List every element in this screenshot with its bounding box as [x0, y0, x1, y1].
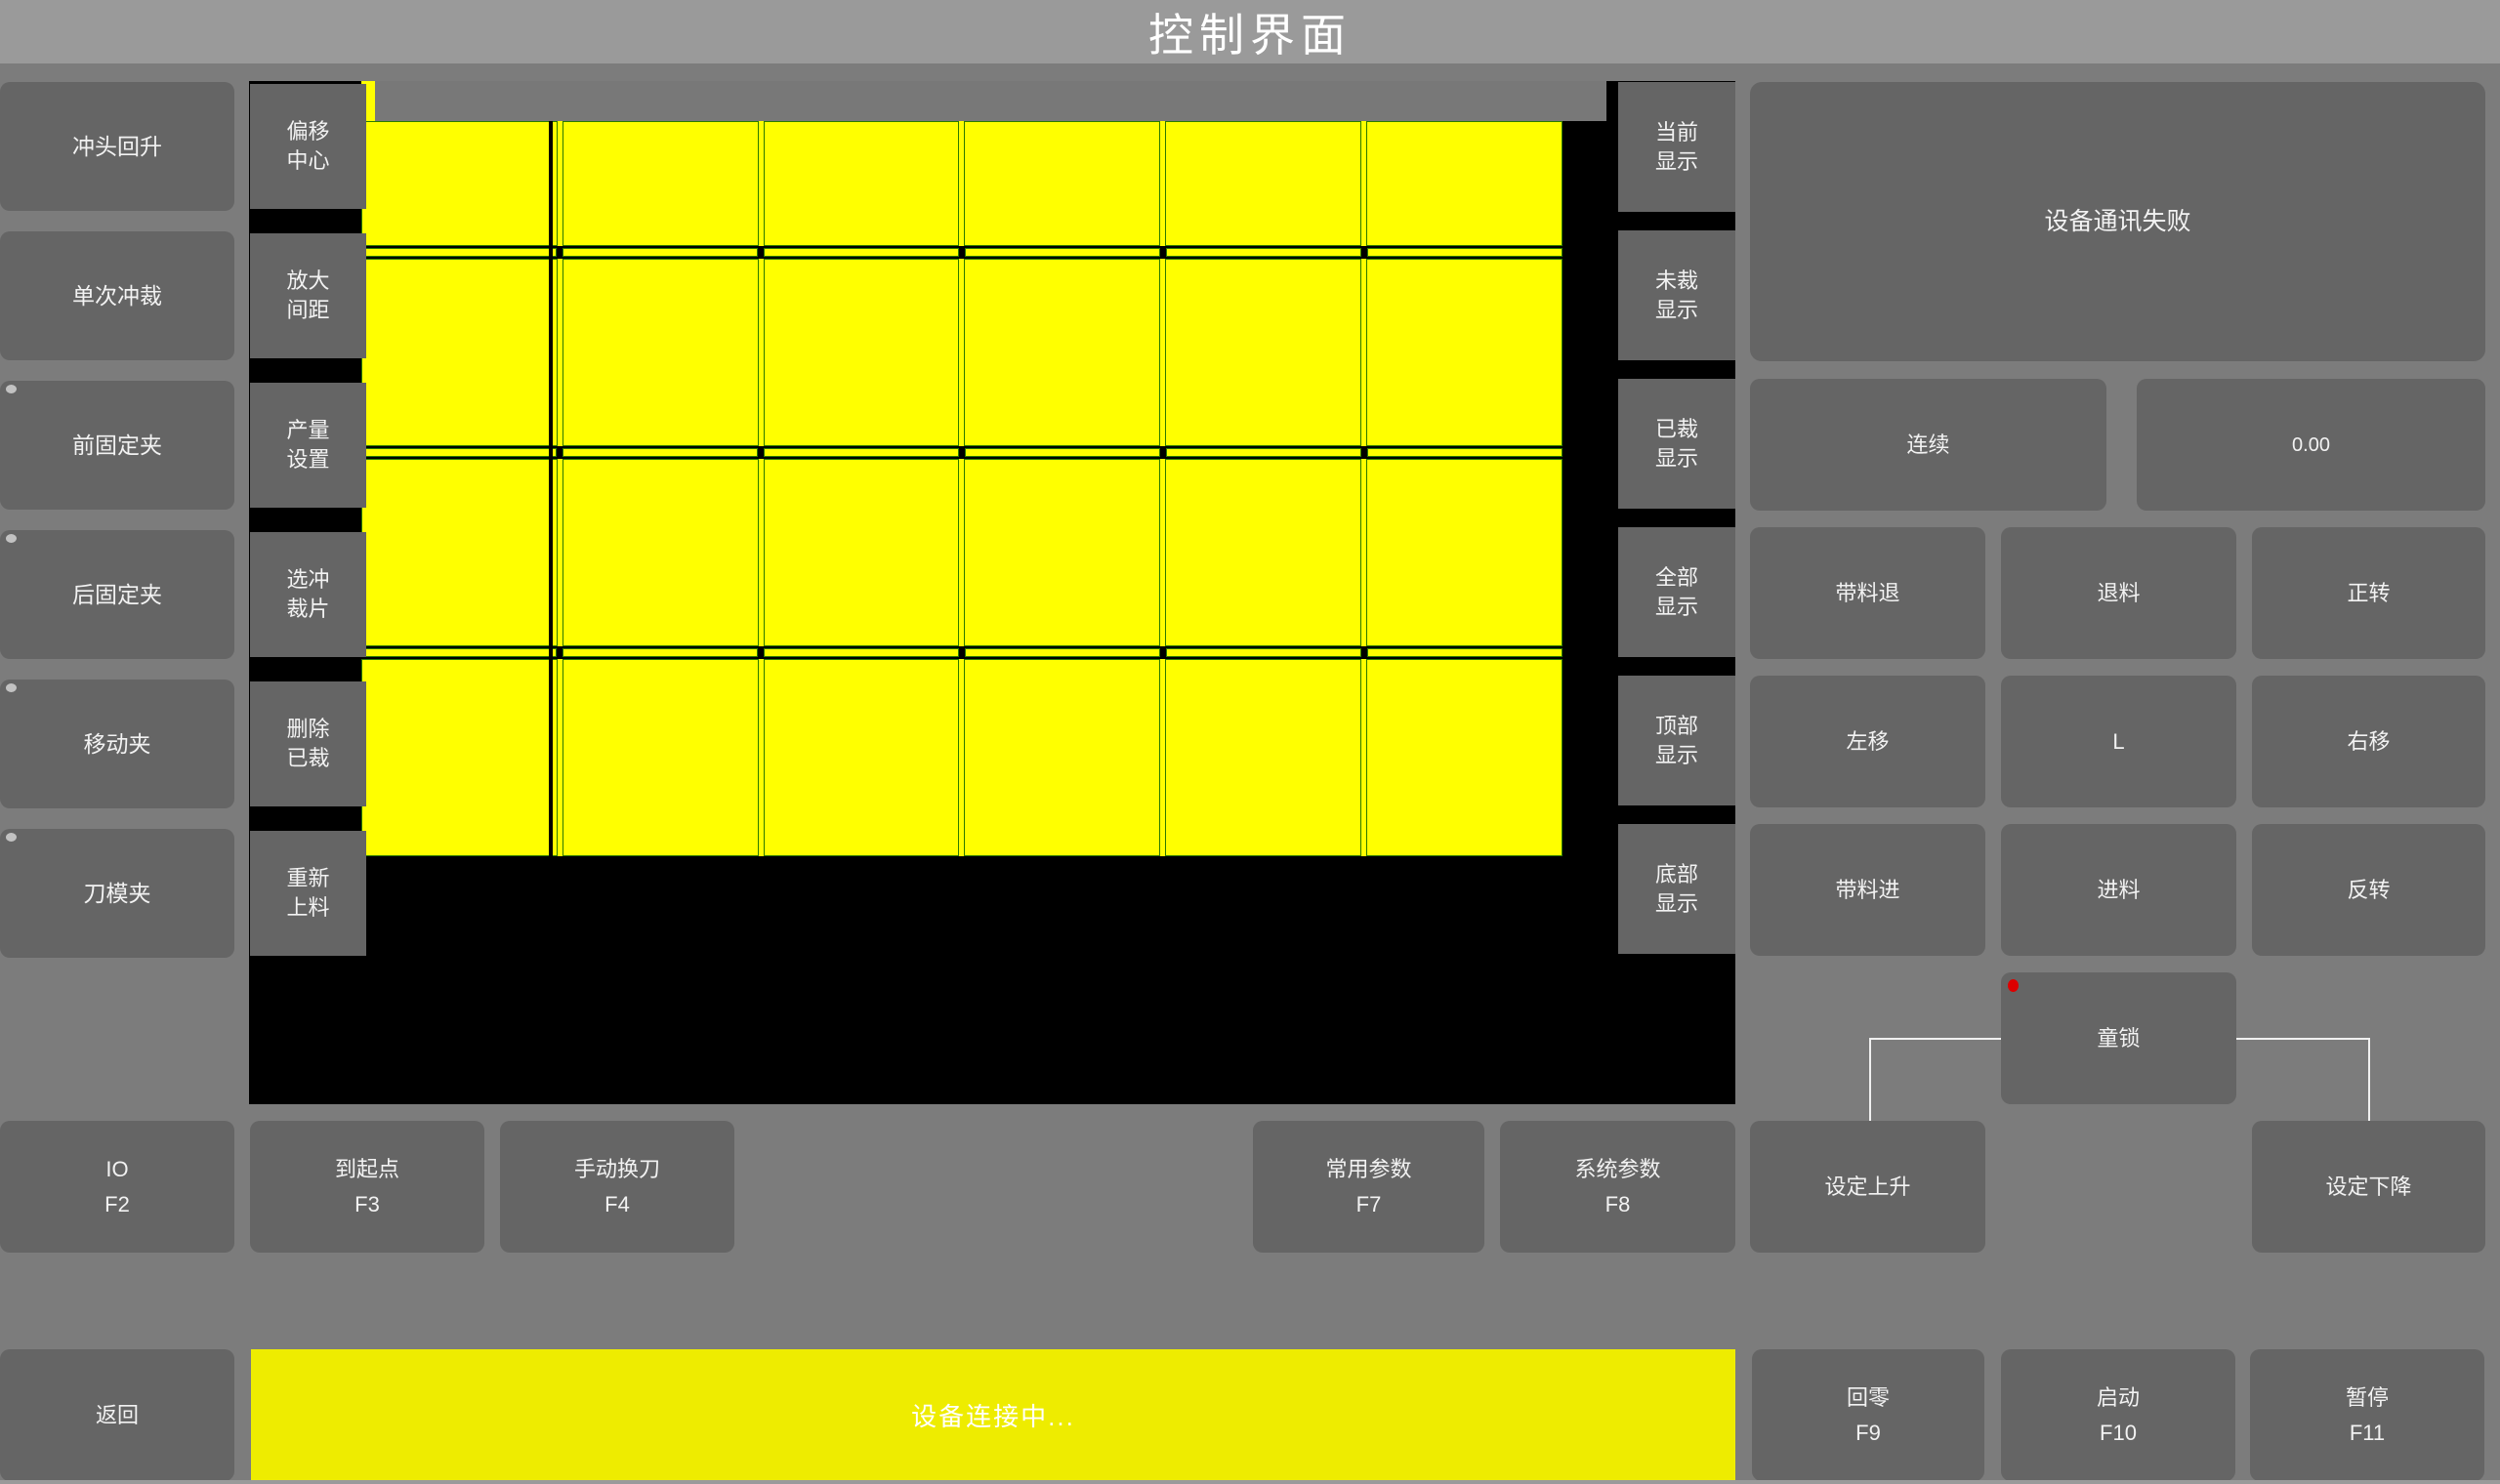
button-label: 重新 上料	[286, 864, 329, 923]
button-label: 冲头回升	[72, 132, 162, 161]
grid-piece[interactable]	[764, 121, 960, 246]
grid-piece[interactable]	[1165, 459, 1361, 646]
tool-button-reload-material[interactable]: 重新 上料	[250, 831, 366, 956]
button-label: 童锁	[2097, 1024, 2140, 1053]
cut-strip	[361, 448, 557, 457]
button-label: 到起点F3	[335, 1152, 399, 1222]
alert-dot-icon	[2008, 979, 2019, 992]
piece-grid	[361, 121, 1562, 856]
motion-button-reverse-rotate[interactable]: 反转	[2252, 824, 2485, 956]
cut-strip	[1367, 248, 1562, 257]
connection-status-bar: 设备连接中...	[251, 1349, 1735, 1481]
grid-piece[interactable]	[361, 659, 558, 856]
grid-piece[interactable]	[361, 121, 558, 246]
bed-top-strip	[375, 81, 1606, 121]
grid-row	[361, 659, 1562, 856]
button-label: 正转	[2347, 579, 2390, 608]
grid-piece[interactable]	[1165, 659, 1361, 856]
button-label: 反转	[2347, 876, 2390, 905]
grid-row	[361, 459, 1562, 646]
button-label: 前固定夹	[72, 431, 162, 460]
grid-piece[interactable]	[1366, 121, 1562, 246]
bracket-line-right-horizontal	[2236, 1038, 2370, 1040]
grid-piece[interactable]	[361, 259, 558, 446]
motion-button-l[interactable]: L	[2001, 676, 2236, 807]
indicator-dot	[6, 833, 17, 842]
page-title: 控制界面	[1148, 0, 1352, 64]
title-bar: 控制界面	[0, 0, 2500, 63]
fkey-button-io[interactable]: IOF2	[0, 1121, 234, 1253]
grid-piece[interactable]	[1165, 121, 1361, 246]
tool-button-offset-center[interactable]: 偏移 中心	[250, 84, 366, 209]
display-button-current[interactable]: 当前 显示	[1618, 82, 1735, 212]
button-label: 底部 显示	[1655, 860, 1698, 919]
cut-strip	[1166, 448, 1361, 457]
indicator-dot	[6, 385, 17, 393]
grid-piece[interactable]	[1366, 459, 1562, 646]
grid-piece[interactable]	[964, 659, 1160, 856]
button-label: 放大 间距	[286, 267, 329, 325]
back-button[interactable]: 返回	[0, 1349, 234, 1481]
button-label: 设定上升	[1824, 1170, 1910, 1205]
fkey-button-pause[interactable]: 暂停F11	[2250, 1349, 2484, 1481]
button-label: 未裁 显示	[1655, 267, 1698, 325]
grid-piece[interactable]	[964, 259, 1160, 446]
cut-strip-row	[361, 446, 1562, 459]
bracket-line-right-vertical	[2368, 1038, 2370, 1121]
nesting-canvas[interactable]	[249, 81, 1735, 1104]
motion-button-forward-rotate[interactable]: 正转	[2252, 527, 2485, 659]
sidebar-button-punch-return[interactable]: 冲头回升	[0, 82, 234, 211]
fkey-button-home-zero[interactable]: 回零F9	[1752, 1349, 1984, 1481]
tool-button-select-piece[interactable]: 选冲 裁片	[250, 532, 366, 657]
motion-button-move-right[interactable]: 右移	[2252, 676, 2485, 807]
bottom-edge-strip	[0, 1480, 2500, 1484]
grid-piece[interactable]	[1366, 659, 1562, 856]
button-label: 选冲 裁片	[286, 565, 329, 624]
button-label: 回零F9	[1847, 1381, 1890, 1451]
button-label: L	[2112, 727, 2124, 757]
button-label: 偏移 中心	[286, 117, 329, 176]
button-label: 带料退	[1835, 579, 1899, 608]
button-label: 单次冲裁	[72, 281, 162, 310]
display-button-all[interactable]: 全部 显示	[1618, 527, 1735, 657]
sidebar-button-moving-clamp[interactable]: 移动夹	[0, 680, 234, 808]
indicator-dot	[6, 683, 17, 692]
button-label: 带料进	[1835, 876, 1899, 905]
button-label: 刀模夹	[84, 879, 151, 908]
grid-piece[interactable]	[1165, 259, 1361, 446]
value-text: 0.00	[2292, 431, 2330, 460]
fkey-button-common-params[interactable]: 常用参数F7	[1253, 1121, 1484, 1253]
tool-button-output-setting[interactable]: 产量 设置	[250, 383, 366, 508]
grid-piece[interactable]	[764, 459, 960, 646]
display-button-cut[interactable]: 已裁 显示	[1618, 379, 1735, 509]
sidebar-button-single-punch[interactable]: 单次冲裁	[0, 231, 234, 360]
fkey-button-to-origin[interactable]: 到起点F3	[250, 1121, 484, 1253]
button-label: 移动夹	[84, 729, 151, 759]
button-label: 全部 显示	[1655, 563, 1698, 622]
fkey-button-system-params[interactable]: 系统参数F8	[1500, 1121, 1735, 1253]
button-label: 启动F10	[2097, 1381, 2140, 1451]
cut-strip	[562, 648, 758, 657]
button-label: 系统参数F8	[1574, 1152, 1660, 1222]
display-button-bottom[interactable]: 底部 显示	[1618, 824, 1735, 954]
connection-status-text: 设备连接中...	[911, 1397, 1075, 1433]
grid-piece[interactable]	[562, 459, 759, 646]
cut-position-line	[549, 121, 553, 856]
cut-strip	[562, 248, 758, 257]
cut-strip-row	[361, 246, 1562, 259]
grid-row	[361, 121, 1562, 246]
continuous-mode-button[interactable]: 连续	[1750, 379, 2106, 511]
cut-strip	[562, 448, 758, 457]
button-label: 返回	[96, 1401, 139, 1430]
motion-button-feed[interactable]: 进料	[2001, 824, 2236, 956]
button-set-fall[interactable]: 设定下降	[2252, 1121, 2485, 1253]
tool-button-delete-cut[interactable]: 删除 已裁	[250, 681, 366, 806]
device-status-box: 设备通讯失败	[1750, 82, 2485, 361]
tool-button-enlarge-spacing[interactable]: 放大 间距	[250, 233, 366, 358]
cut-strip	[764, 448, 959, 457]
display-button-top[interactable]: 顶部 显示	[1618, 676, 1735, 805]
grid-piece[interactable]	[964, 459, 1160, 646]
button-label: 当前 显示	[1655, 118, 1698, 177]
cut-strip	[1166, 248, 1361, 257]
sidebar-button-die-clamp[interactable]: 刀模夹	[0, 829, 234, 958]
indicator-dot	[6, 534, 17, 543]
cut-strip-row	[361, 646, 1562, 659]
motion-button-material-back[interactable]: 带料退	[1750, 527, 1985, 659]
button-label: 退料	[2097, 579, 2140, 608]
button-label: 产量 设置	[286, 416, 329, 474]
cut-strip	[764, 648, 959, 657]
button-label: 设定下降	[2325, 1170, 2411, 1205]
button-label: 连续	[1906, 431, 1949, 460]
cut-strip	[1367, 448, 1562, 457]
grid-piece[interactable]	[562, 259, 759, 446]
button-label: 左移	[1846, 727, 1889, 757]
cut-strip	[965, 448, 1160, 457]
button-label: 进料	[2097, 876, 2140, 905]
grid-piece[interactable]	[361, 459, 558, 646]
grid-piece[interactable]	[1366, 259, 1562, 446]
value-display-box[interactable]: 0.00	[2137, 379, 2485, 511]
button-set-rise[interactable]: 设定上升	[1750, 1121, 1985, 1253]
button-label: 暂停F11	[2346, 1381, 2389, 1451]
cut-strip	[965, 248, 1160, 257]
bracket-line-left-horizontal	[1869, 1038, 2001, 1040]
cut-strip	[1166, 648, 1361, 657]
grid-piece[interactable]	[764, 659, 960, 856]
motion-button-material-forward[interactable]: 带料进	[1750, 824, 1985, 956]
button-label: 手动换刀F4	[574, 1152, 660, 1222]
button-label: 删除 已裁	[286, 715, 329, 773]
bracket-line-left-vertical	[1869, 1038, 1871, 1121]
device-status-text: 设备通讯失败	[2044, 207, 2190, 236]
grid-piece[interactable]	[562, 121, 759, 246]
sidebar-button-rear-clamp[interactable]: 后固定夹	[0, 530, 234, 659]
display-button-uncut[interactable]: 未裁 显示	[1618, 230, 1735, 360]
grid-piece[interactable]	[764, 259, 960, 446]
grid-piece[interactable]	[964, 121, 1160, 246]
fkey-button-start[interactable]: 启动F10	[2001, 1349, 2235, 1481]
motion-button-move-left[interactable]: 左移	[1750, 676, 1985, 807]
cut-strip	[361, 648, 557, 657]
grid-piece[interactable]	[562, 659, 759, 856]
grid-row	[361, 259, 1562, 446]
button-label: 常用参数F7	[1325, 1152, 1411, 1222]
cut-strip	[965, 648, 1160, 657]
cut-strip	[764, 248, 959, 257]
cut-strip	[1367, 648, 1562, 657]
fkey-button-manual-tool-change[interactable]: 手动换刀F4	[500, 1121, 734, 1253]
sidebar-button-front-clamp[interactable]: 前固定夹	[0, 381, 234, 510]
button-label: IOF2	[104, 1152, 130, 1222]
cut-strip	[361, 248, 557, 257]
button-label: 右移	[2347, 727, 2390, 757]
child-lock-button[interactable]: 童锁	[2001, 972, 2236, 1104]
button-label: 后固定夹	[72, 580, 162, 609]
motion-button-unload[interactable]: 退料	[2001, 527, 2236, 659]
button-label: 顶部 显示	[1655, 712, 1698, 770]
button-label: 已裁 显示	[1655, 415, 1698, 474]
